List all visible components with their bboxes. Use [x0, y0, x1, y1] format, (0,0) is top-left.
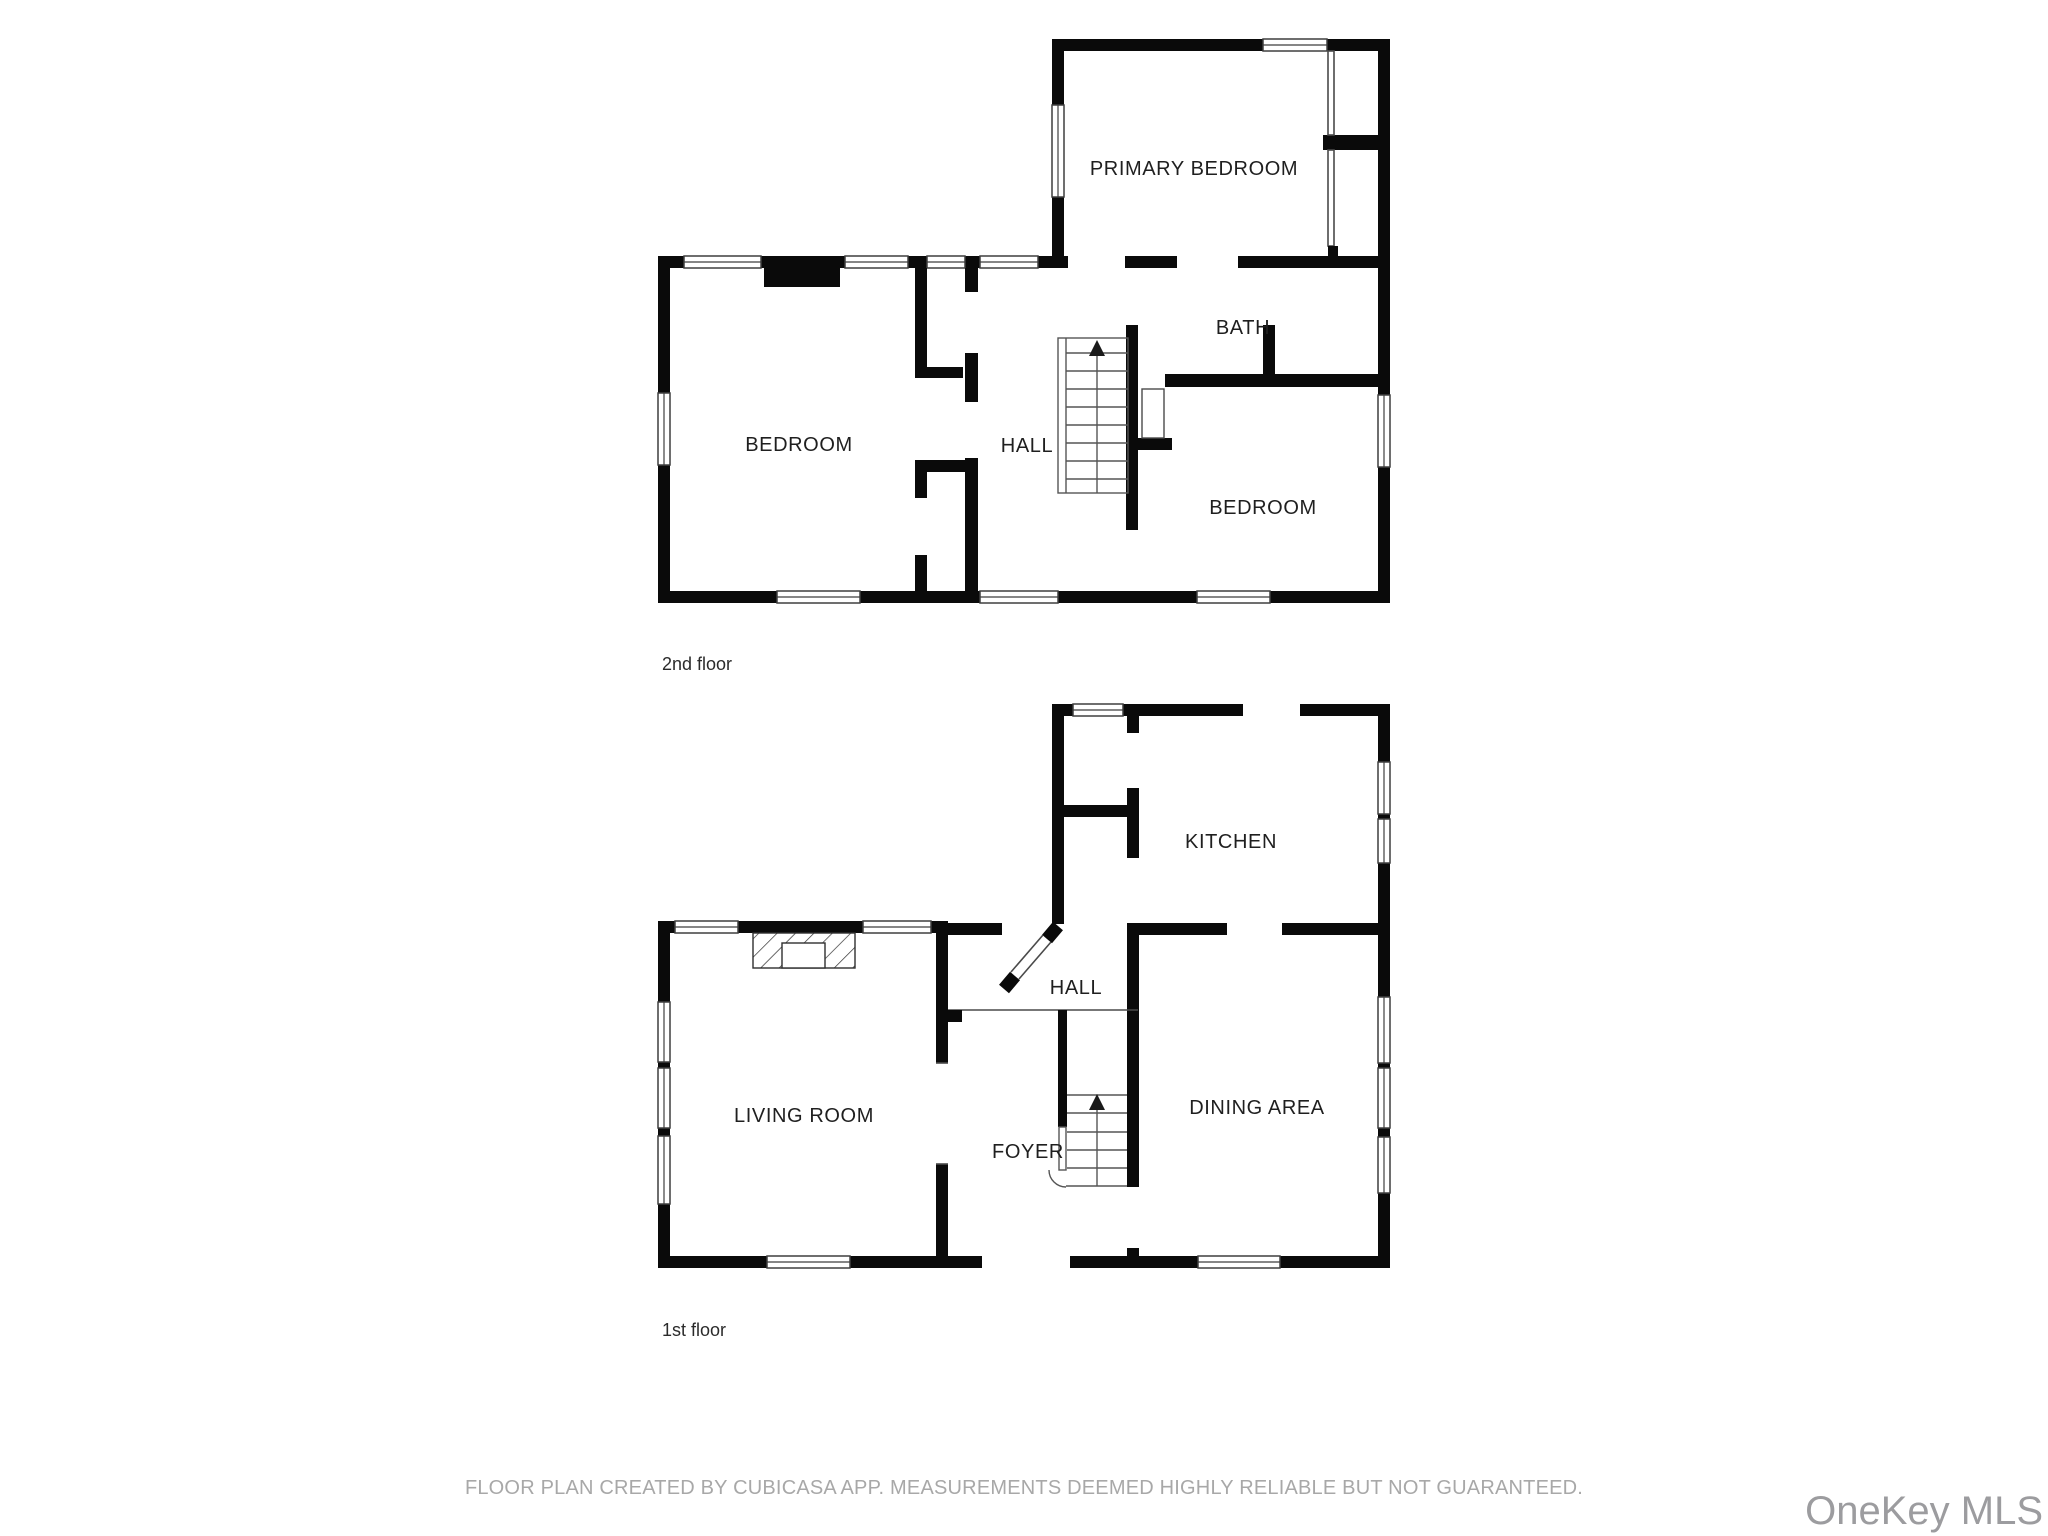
room-label-bedroom-left: BEDROOM [745, 434, 853, 456]
window [1378, 819, 1390, 863]
fireplace [753, 933, 855, 968]
room-label-dining-area: DINING AREA [1189, 1097, 1325, 1119]
room-label-hall-1f: HALL [1050, 977, 1102, 999]
chimney [764, 256, 840, 287]
interior-walls-second-floor [915, 51, 1390, 591]
floor-plan-drawing: PRIMARY BEDROOM BATH BEDROOM HALL BEDROO… [0, 0, 2048, 1536]
watermark-text: OneKey MLS [1805, 1489, 2043, 1533]
stairs-up-arrow-icon [1089, 1094, 1105, 1110]
window [1378, 395, 1390, 467]
room-label-primary-bedroom: PRIMARY BEDROOM [1090, 158, 1298, 180]
window [1378, 762, 1390, 814]
window [777, 591, 860, 603]
exterior-walls [658, 704, 1390, 1268]
window [658, 1002, 670, 1062]
window [1073, 704, 1123, 716]
window [927, 256, 965, 268]
window [1198, 1256, 1280, 1268]
room-label-bedroom-right: BEDROOM [1209, 497, 1317, 519]
room-label-bath: BATH [1216, 317, 1270, 339]
stairs-second-floor [1058, 338, 1128, 493]
window [684, 256, 761, 268]
window [1378, 1137, 1390, 1193]
second-floor-plan: PRIMARY BEDROOM BATH BEDROOM HALL BEDROO… [658, 39, 1390, 674]
windows-first-floor [658, 704, 1390, 1268]
stairs-up-arrow-icon [1089, 340, 1105, 356]
window [1378, 1068, 1390, 1128]
floor-label-1st: 1st floor [662, 1320, 726, 1340]
room-label-foyer: FOYER [992, 1141, 1064, 1163]
floor-label-2nd: 2nd floor [662, 654, 732, 674]
window [658, 1136, 670, 1204]
window [980, 591, 1058, 603]
floor-plan-page: PRIMARY BEDROOM BATH BEDROOM HALL BEDROO… [0, 0, 2048, 1536]
window [863, 921, 931, 933]
door-opening [1142, 389, 1164, 438]
closet-door [1328, 150, 1334, 246]
window [980, 256, 1038, 268]
closet-door [1328, 51, 1334, 135]
window [1378, 997, 1390, 1063]
first-floor-plan: KITCHEN HALL LIVING ROOM FOYER DINING AR… [658, 704, 1390, 1340]
window [845, 256, 908, 268]
window [1052, 105, 1064, 197]
room-label-kitchen: KITCHEN [1185, 831, 1277, 853]
window [1197, 591, 1270, 603]
disclaimer-text: FLOOR PLAN CREATED BY CUBICASA APP. MEAS… [465, 1477, 1583, 1499]
window [675, 921, 738, 933]
window [1263, 39, 1327, 51]
room-label-hall-2f: HALL [1001, 435, 1053, 457]
window [658, 1068, 670, 1128]
window [767, 1256, 850, 1268]
window [658, 393, 670, 465]
room-label-living-room: LIVING ROOM [734, 1105, 874, 1127]
